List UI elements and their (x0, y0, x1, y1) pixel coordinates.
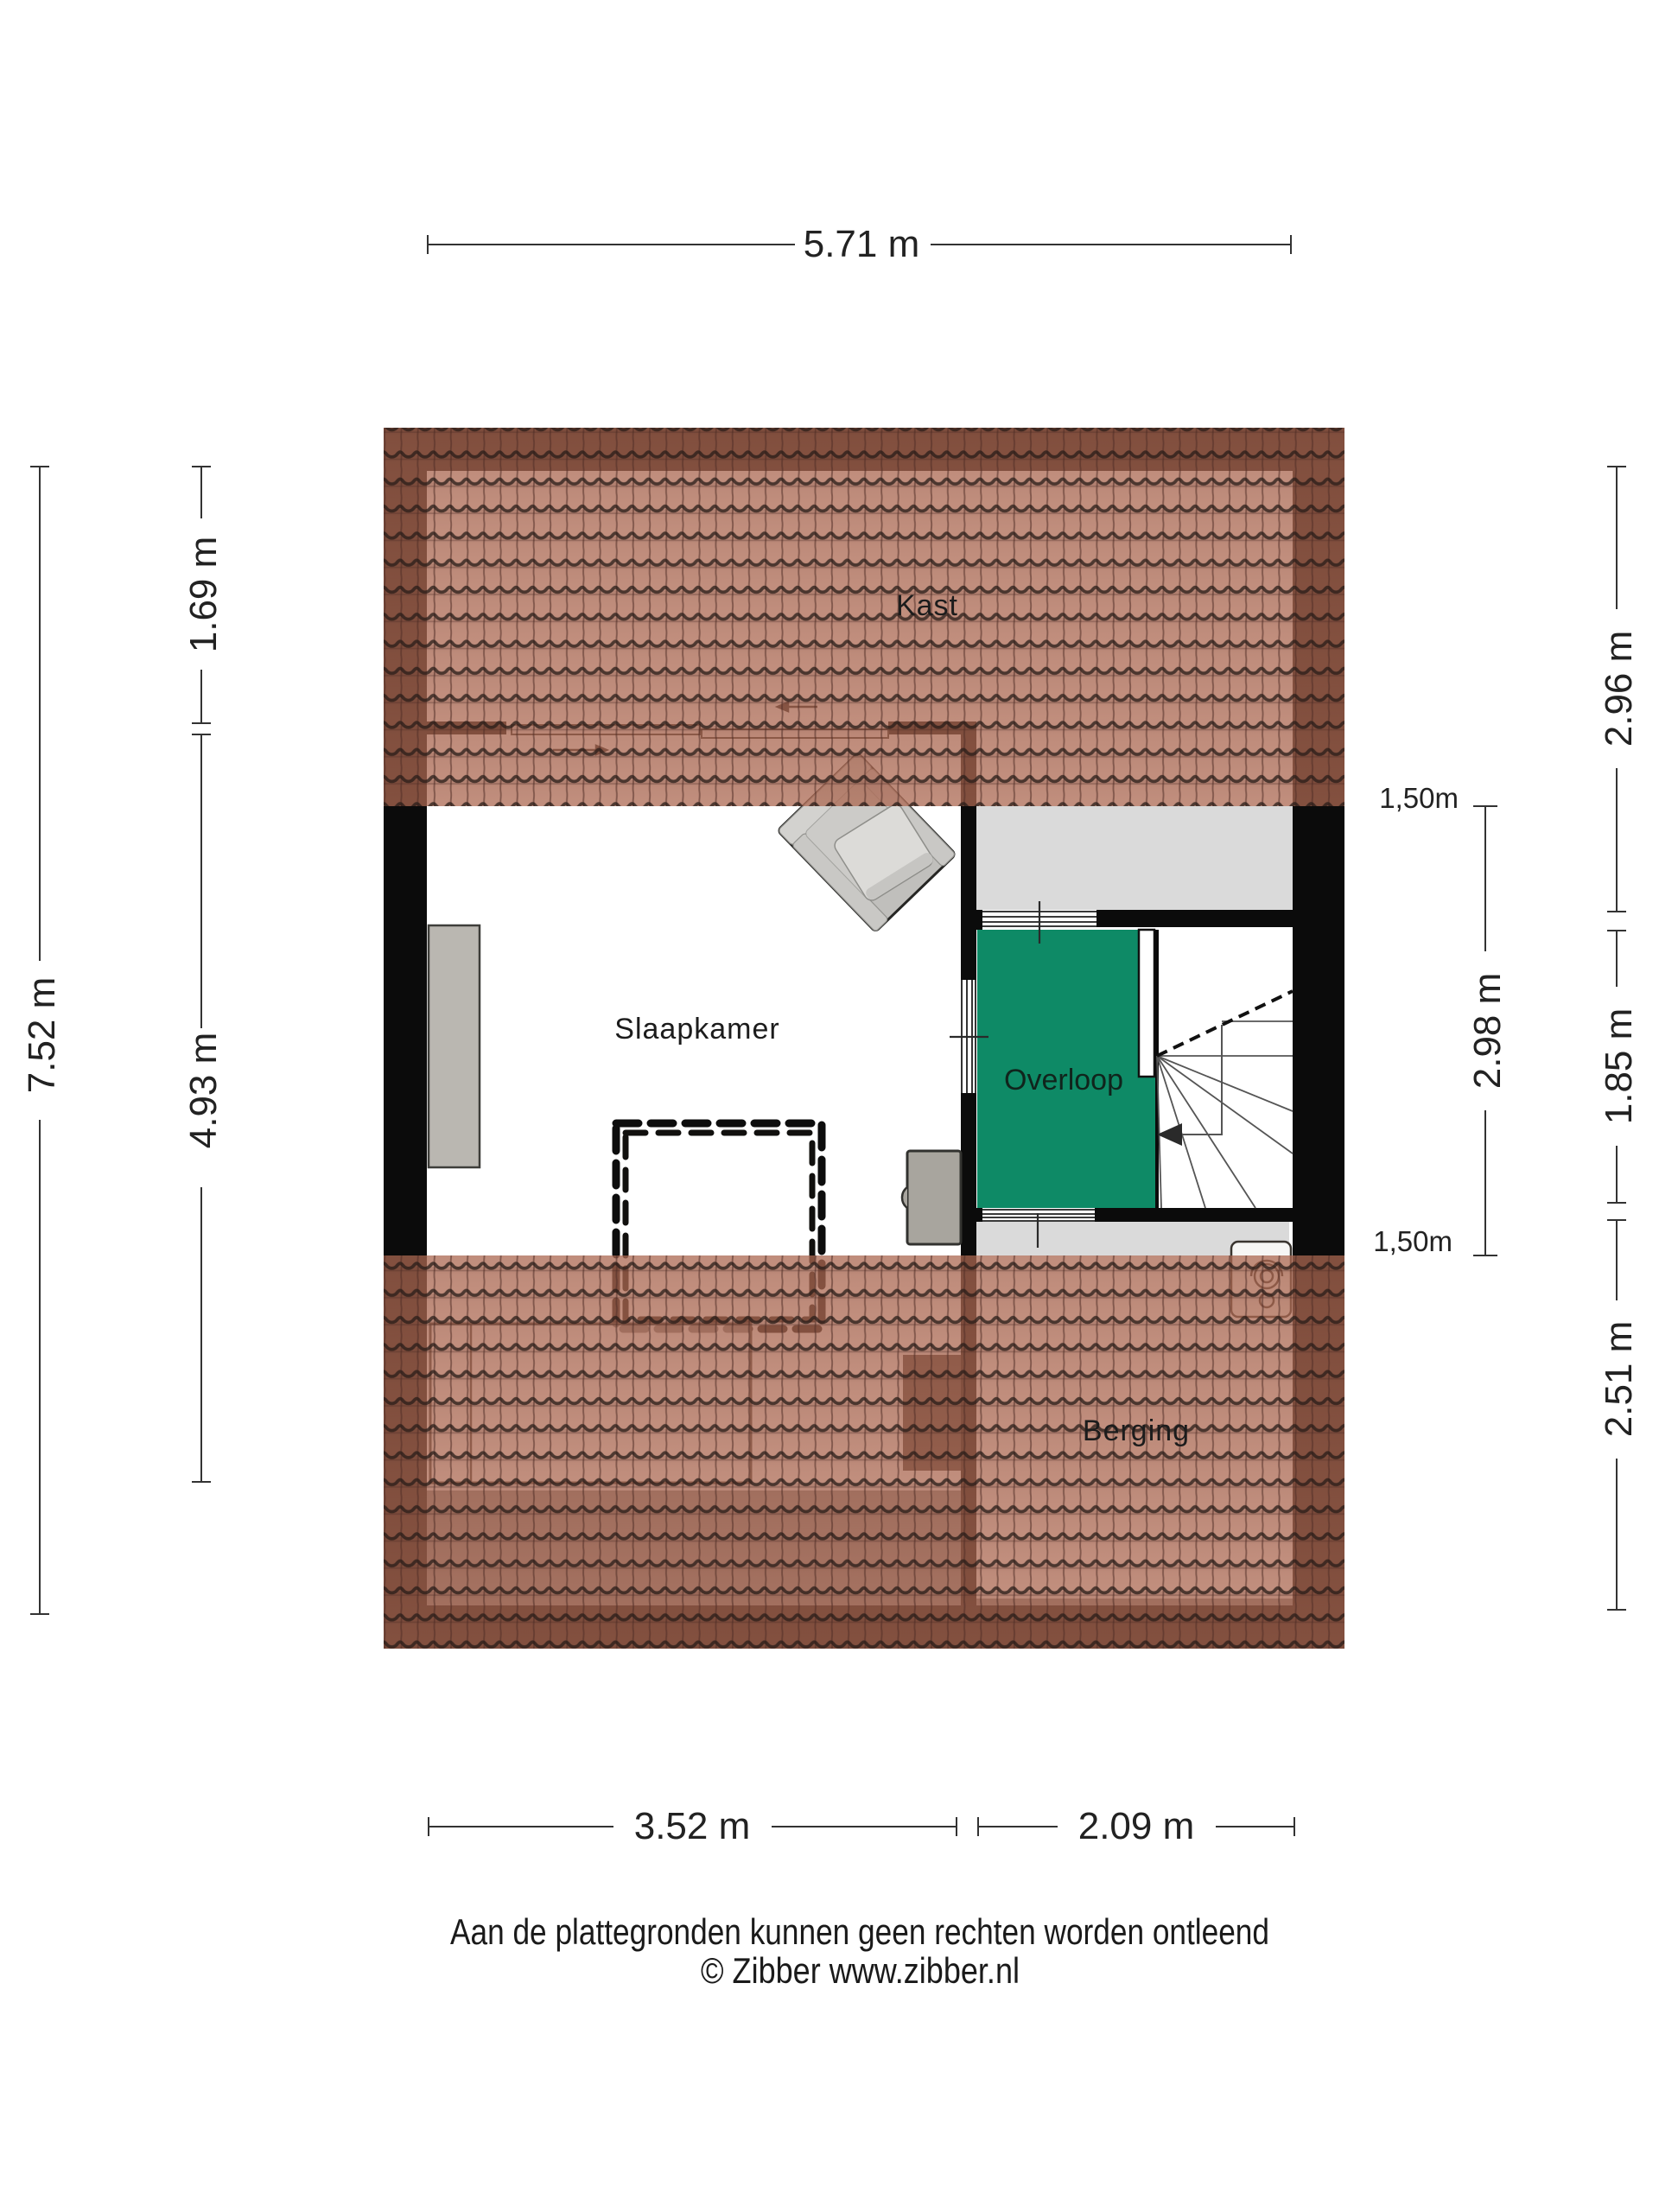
svg-text:5.71 m: 5.71 m (804, 223, 920, 265)
svg-text:2.51 m: 2.51 m (1598, 1321, 1640, 1438)
svg-text:7.52 m: 7.52 m (21, 977, 63, 1094)
svg-text:Kast: Kast (896, 589, 958, 622)
svg-text:4.93 m: 4.93 m (182, 1033, 225, 1149)
svg-text:1.69 m: 1.69 m (182, 537, 225, 653)
svg-text:Overloop: Overloop (1004, 1064, 1123, 1096)
svg-text:2.98 m: 2.98 m (1466, 973, 1509, 1090)
svg-text:2.96 m: 2.96 m (1598, 631, 1640, 747)
svg-text:2.09 m: 2.09 m (1078, 1805, 1195, 1847)
svg-text:Slaapkamer: Slaapkamer (614, 1013, 779, 1046)
svg-text:3.52 m: 3.52 m (634, 1805, 751, 1847)
svg-text:1,50m: 1,50m (1379, 782, 1459, 814)
svg-text:Aan de plattegronden kunnen ge: Aan de plattegronden kunnen geen rechten… (450, 1911, 1269, 1952)
svg-text:1,50m: 1,50m (1373, 1225, 1452, 1257)
svg-text:1.85 m: 1.85 m (1598, 1008, 1640, 1125)
svg-text:Berging: Berging (1083, 1414, 1190, 1447)
svg-text:© Zibber www.zibber.nl: © Zibber www.zibber.nl (701, 1950, 1020, 1991)
